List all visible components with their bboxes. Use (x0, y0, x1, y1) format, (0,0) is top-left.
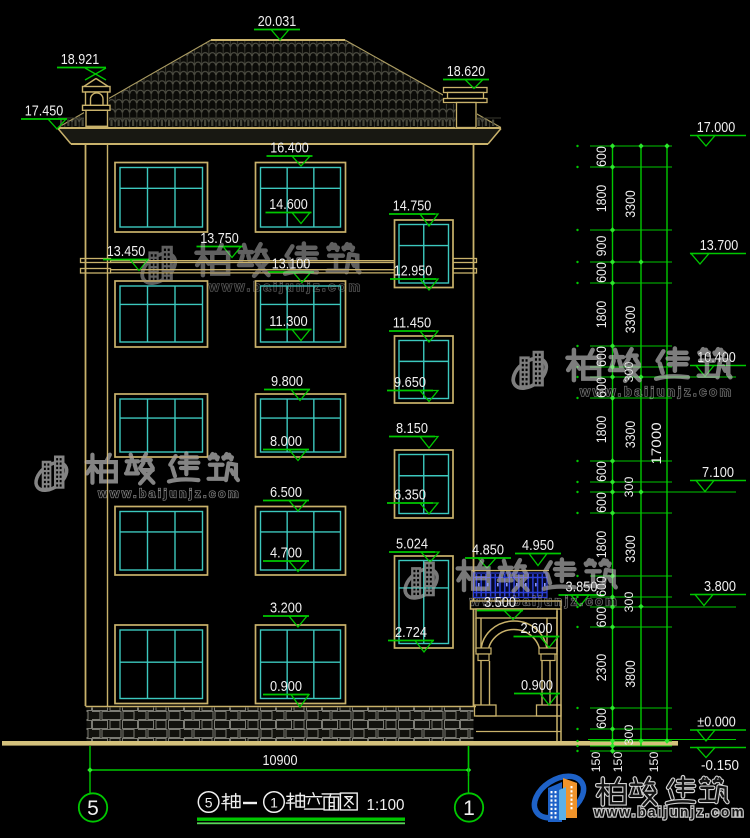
svg-text:3.800: 3.800 (704, 579, 736, 595)
svg-text:18.921: 18.921 (61, 52, 99, 68)
svg-text:www.baijunjz.com: www.baijunjz.com (593, 805, 746, 820)
svg-text:7.100: 7.100 (702, 465, 734, 481)
svg-text:3800: 3800 (623, 660, 638, 688)
svg-text:3.200: 3.200 (270, 601, 302, 617)
svg-text:16.400: 16.400 (270, 141, 308, 157)
svg-text:12.950: 12.950 (394, 264, 432, 280)
svg-text:3300: 3300 (623, 421, 638, 449)
svg-text:9.800: 9.800 (271, 374, 303, 390)
svg-text:3300: 3300 (623, 535, 638, 563)
svg-text:5: 5 (205, 795, 213, 811)
svg-text:www.baijunjz.com: www.baijunjz.com (469, 594, 619, 608)
svg-text:0.900: 0.900 (270, 679, 302, 695)
svg-text:900: 900 (594, 236, 609, 257)
svg-text:17.450: 17.450 (25, 104, 63, 120)
svg-text:1800: 1800 (594, 301, 609, 329)
svg-text:1:100: 1:100 (367, 797, 405, 814)
svg-text:1: 1 (270, 795, 278, 811)
svg-text:150: 150 (611, 751, 625, 772)
svg-text:www.baijunjz.com: www.baijunjz.com (97, 486, 241, 500)
svg-text:0.900: 0.900 (521, 678, 553, 694)
svg-text:600: 600 (594, 262, 609, 283)
svg-text:2300: 2300 (594, 654, 609, 682)
svg-text:18.620: 18.620 (447, 64, 485, 80)
svg-text:4.850: 4.850 (472, 543, 504, 559)
svg-text:-0.150: -0.150 (701, 758, 739, 774)
svg-text:600: 600 (594, 708, 609, 729)
svg-text:600: 600 (594, 461, 609, 482)
svg-text:9.650: 9.650 (394, 375, 426, 391)
svg-text:6.500: 6.500 (270, 485, 302, 501)
svg-text:3300: 3300 (623, 306, 638, 334)
svg-text:8.000: 8.000 (270, 434, 302, 450)
svg-text:150: 150 (647, 751, 661, 772)
svg-text:600: 600 (594, 492, 609, 513)
svg-text:300: 300 (622, 591, 636, 612)
svg-text:11.450: 11.450 (393, 316, 431, 332)
svg-text:1800: 1800 (594, 416, 609, 444)
svg-text:1800: 1800 (594, 185, 609, 213)
svg-text:8.150: 8.150 (396, 421, 428, 437)
svg-text:17.000: 17.000 (697, 120, 735, 136)
svg-text:600: 600 (594, 607, 609, 628)
svg-text:www.baijunjz.com: www.baijunjz.com (208, 279, 363, 294)
svg-text:300: 300 (622, 724, 636, 745)
svg-text:6.350: 6.350 (394, 488, 426, 504)
svg-text:10900: 10900 (263, 753, 298, 769)
svg-text:600: 600 (594, 146, 609, 167)
svg-text:5: 5 (87, 797, 99, 820)
svg-text:14.600: 14.600 (269, 197, 307, 213)
svg-text:14.750: 14.750 (393, 199, 431, 215)
svg-text:13.700: 13.700 (700, 238, 738, 254)
svg-text:150: 150 (589, 751, 603, 772)
svg-text:5.024: 5.024 (396, 537, 428, 553)
svg-text:1800: 1800 (594, 531, 609, 559)
svg-text:13.450: 13.450 (107, 244, 145, 260)
svg-text:4.700: 4.700 (270, 546, 302, 562)
svg-text:3300: 3300 (623, 190, 638, 218)
svg-text:4.950: 4.950 (522, 538, 554, 554)
svg-text:20.031: 20.031 (258, 14, 296, 30)
svg-text:www.baijunjz.com: www.baijunjz.com (579, 384, 734, 399)
svg-text:2.724: 2.724 (395, 625, 427, 641)
svg-text:17000: 17000 (649, 423, 664, 465)
svg-text:±0.000: ±0.000 (697, 715, 735, 731)
svg-text:1: 1 (463, 797, 475, 820)
svg-text:11.300: 11.300 (269, 314, 307, 330)
svg-text:300: 300 (622, 476, 636, 497)
svg-text:2.600: 2.600 (521, 621, 553, 637)
